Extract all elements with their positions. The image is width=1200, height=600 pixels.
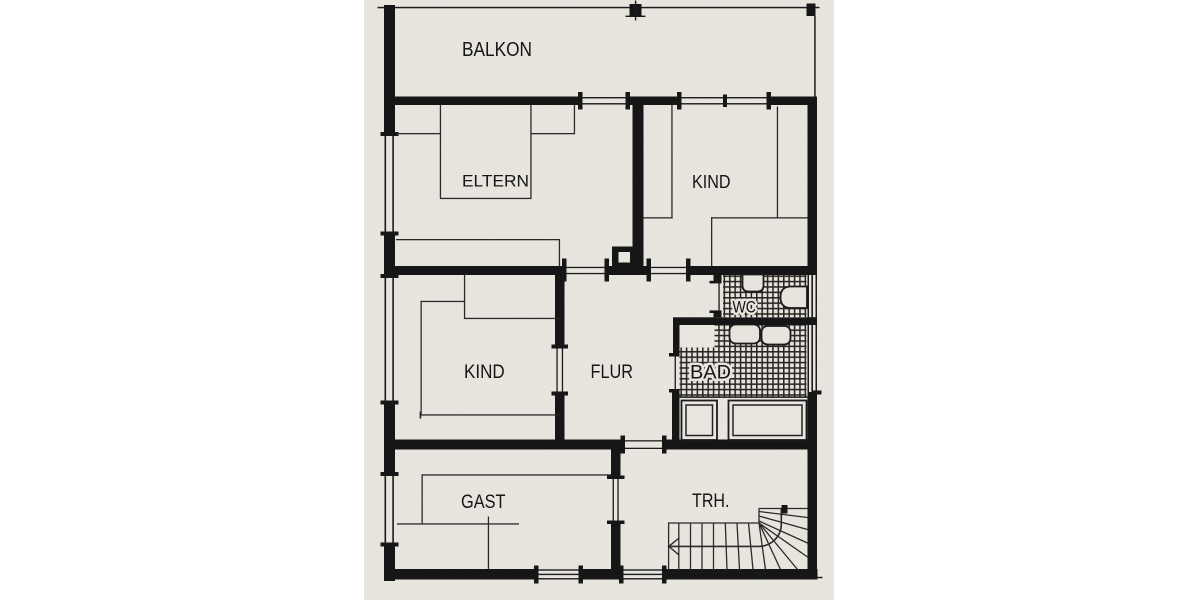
svg-text:KIND: KIND (464, 362, 505, 383)
svg-text:BAD: BAD (690, 363, 731, 384)
svg-text:GAST: GAST (461, 492, 506, 513)
svg-text:BALKON: BALKON (462, 39, 532, 61)
svg-text:WC: WC (733, 298, 757, 317)
svg-text:ELTERN: ELTERN (462, 172, 529, 191)
svg-text:FLUR: FLUR (591, 362, 634, 383)
svg-text:TRH.: TRH. (692, 491, 730, 512)
svg-text:KIND: KIND (692, 172, 731, 192)
